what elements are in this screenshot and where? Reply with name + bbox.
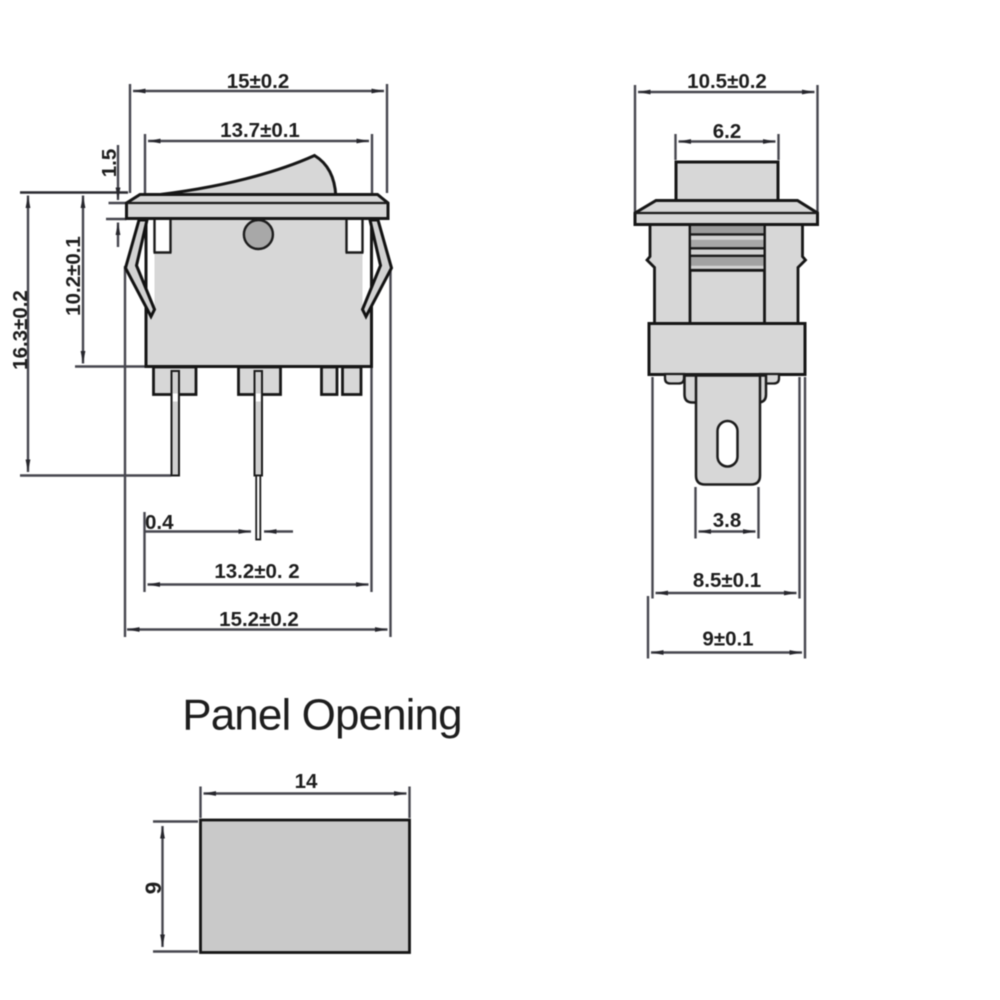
svg-text:10.2±0.1: 10.2±0.1 — [62, 236, 85, 316]
svg-text:15.2±0.2: 15.2±0.2 — [219, 608, 299, 631]
svg-text:3.8: 3.8 — [713, 509, 742, 532]
svg-text:9: 9 — [141, 882, 166, 895]
svg-text:10.5±0.2: 10.5±0.2 — [687, 70, 767, 93]
svg-text:9±0.1: 9±0.1 — [702, 628, 753, 651]
svg-text:8.5±0.1: 8.5±0.1 — [693, 569, 761, 592]
svg-text:16.3±0.2: 16.3±0.2 — [9, 290, 32, 370]
svg-text:15±0.2: 15±0.2 — [227, 70, 290, 93]
svg-text:13.7±0.1: 13.7±0.1 — [220, 119, 300, 142]
svg-text:13.2±0. 2: 13.2±0. 2 — [214, 560, 299, 583]
svg-text:0.4: 0.4 — [145, 511, 174, 534]
svg-text:6.2: 6.2 — [713, 120, 742, 143]
svg-text:Panel Opening: Panel Opening — [182, 691, 461, 740]
svg-text:14: 14 — [295, 770, 318, 793]
svg-text:1.5: 1.5 — [98, 149, 121, 178]
